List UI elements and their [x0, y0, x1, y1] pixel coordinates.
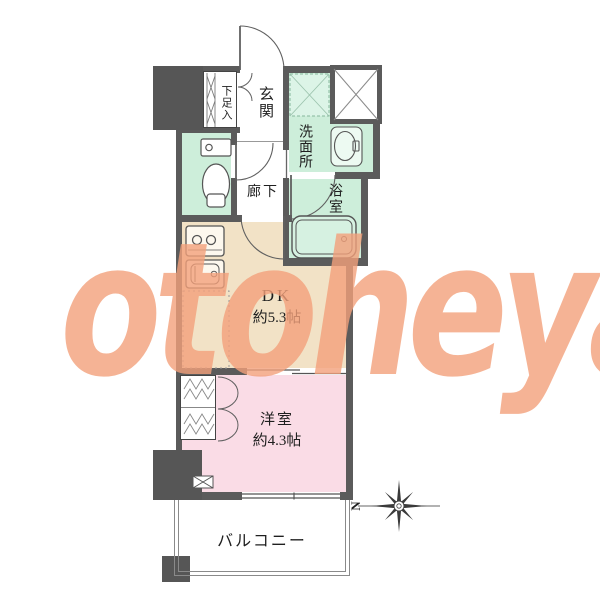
balcony-window — [242, 493, 340, 500]
label-dk-size: 約5.3帖 — [229, 306, 325, 327]
ac-vent-icon — [193, 476, 213, 488]
label-shoe-storage: 下足入 — [218, 76, 234, 130]
floorplan-image: 下足入 玄関 洗面所 浴室 廊下 DK 約5.3帖 洋室 約4.3帖 バルコニー… — [0, 0, 600, 600]
entrance-door-arc — [240, 26, 284, 70]
vanity-sink-icon — [331, 127, 362, 166]
closet-hanger-marks — [181, 379, 215, 434]
label-dk: DK 約5.3帖 — [229, 286, 325, 327]
shoe-cabinet-door-arcs — [238, 73, 252, 101]
bathtub-icon — [292, 216, 356, 258]
toilet-icon — [201, 139, 231, 207]
compass-rose-icon — [358, 478, 440, 535]
dk-door-arc — [241, 216, 284, 259]
kitchen-area-outline — [183, 291, 229, 368]
partition-sliding-door — [247, 370, 346, 374]
label-compass-north: N — [348, 498, 364, 514]
hallway-door-arc — [236, 143, 273, 180]
label-balcony: バルコニー — [187, 527, 337, 551]
label-western-room: 洋室 約4.3帖 — [229, 408, 325, 450]
label-western-size: 約4.3帖 — [229, 429, 325, 450]
label-western-name: 洋室 — [229, 408, 325, 429]
label-bathroom: 浴室 — [328, 181, 344, 217]
stove-icon — [186, 226, 224, 256]
kitchen-sink-icon — [186, 260, 224, 288]
label-genkan: 玄関 — [258, 80, 276, 126]
label-washroom: 洗面所 — [297, 117, 314, 175]
label-dk-name: DK — [229, 286, 325, 306]
pipe-shaft-cross — [334, 69, 378, 120]
laundry-pan-icon — [290, 74, 329, 116]
label-hallway: 廊下 — [240, 181, 286, 201]
shoe-cabinet-hatch — [207, 73, 215, 127]
